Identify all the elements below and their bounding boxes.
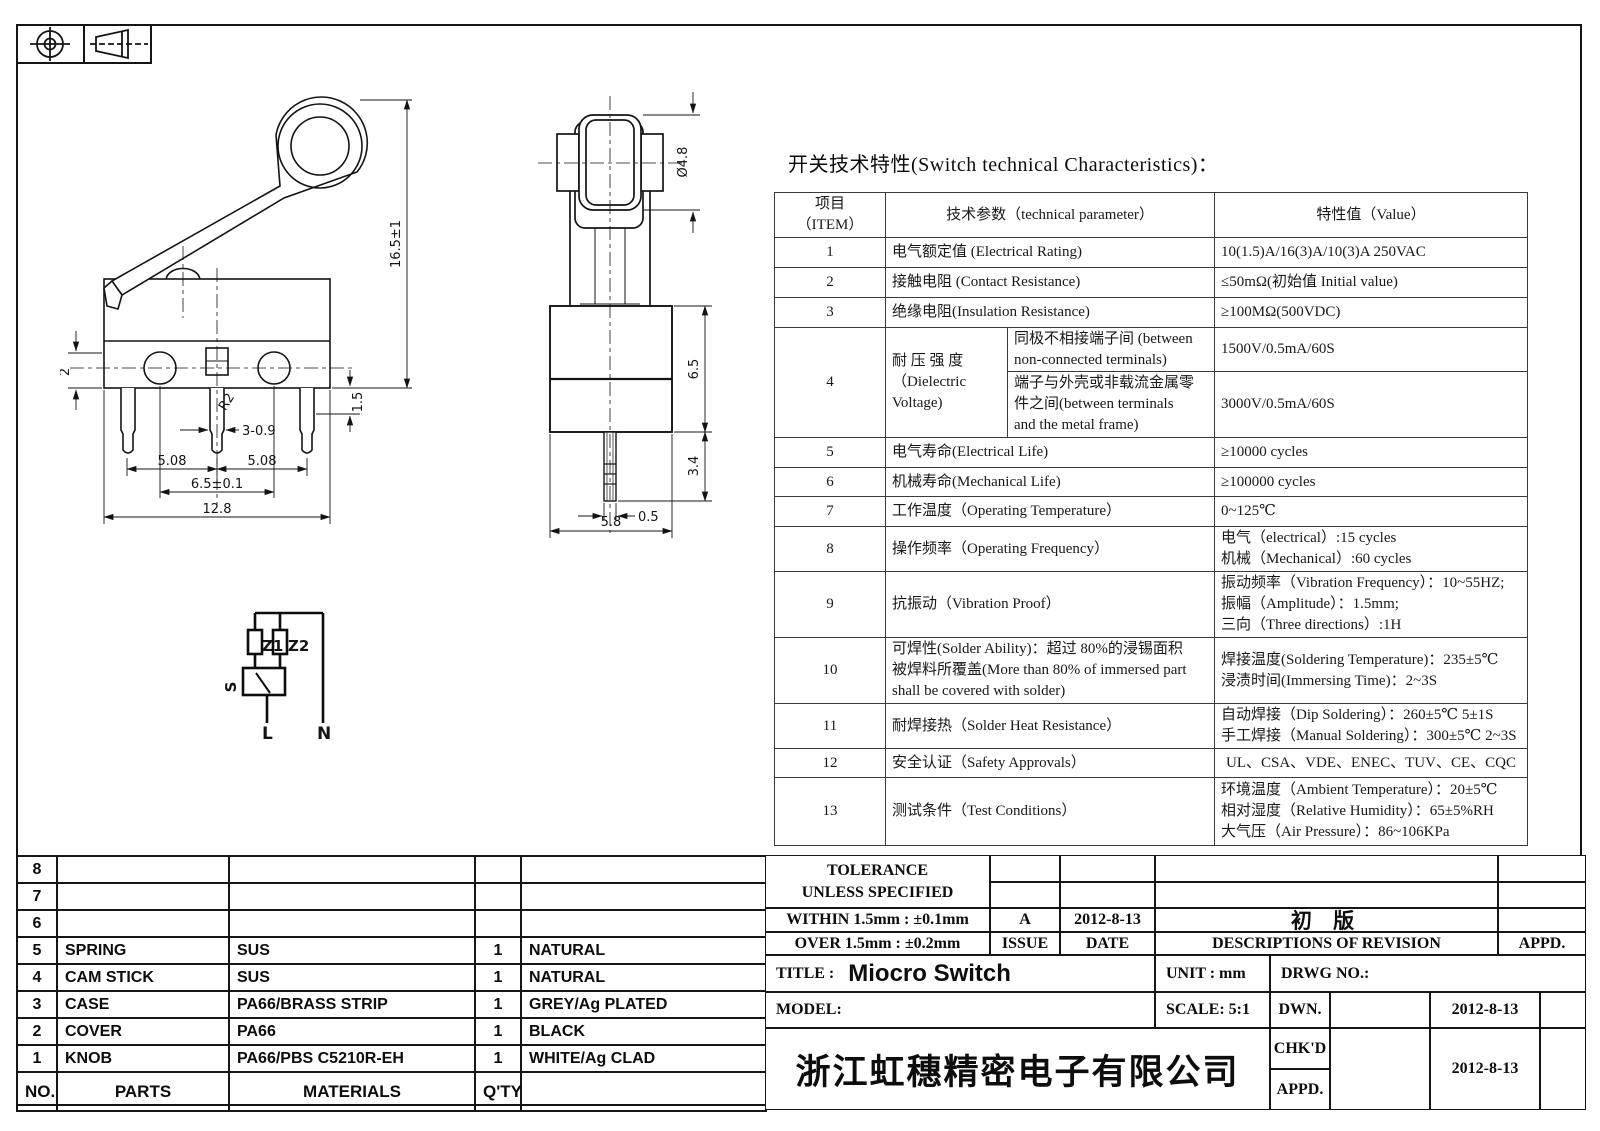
issue-value: A <box>990 908 1060 932</box>
spec-item-no: 9 <box>775 572 886 638</box>
dim-front-right: 1.5 <box>351 392 366 413</box>
spec-param: 可焊性(Solder Ability)：超过 80%的浸锡面积 被焊料所覆盖(M… <box>886 638 1215 704</box>
parts-header-no: NO. <box>17 1072 57 1111</box>
tolerance-over: OVER 1.5mm : ±0.2mm <box>765 932 990 955</box>
table-row: 4 耐 压 强 度 （Dielectric Voltage) 同极不相接端子间 … <box>775 328 1528 372</box>
table-row: 2COVERPA661BLACK <box>17 1018 766 1045</box>
chkd-signature-cell <box>1330 1028 1430 1110</box>
spec-param: 测试条件（Test Conditions） <box>886 778 1215 846</box>
spec-value: ≥100000 cycles <box>1215 468 1528 497</box>
date-label: DATE <box>1060 932 1155 955</box>
part-no: 1 <box>17 1045 57 1072</box>
dim-front-height: 16.5±1 <box>389 220 404 268</box>
part-qty: 1 <box>475 991 521 1018</box>
dim-side-terminal-width: 0.5 <box>638 510 659 525</box>
part-no: 2 <box>17 1018 57 1045</box>
appd-label: APPD. <box>1498 932 1586 955</box>
part-name: COVER <box>57 1018 229 1045</box>
dim-side-diameter: Ø4.8 <box>676 147 691 178</box>
spec-param: 接触电阻 (Contact Resistance) <box>886 268 1215 298</box>
part-color: NATURAL <box>521 964 766 991</box>
revision-empty-cell <box>1498 882 1586 908</box>
part-qty: 1 <box>475 964 521 991</box>
dim-side-body-width: 5.8 <box>601 515 622 530</box>
scale-cell: SCALE: 5:1 <box>1155 992 1270 1028</box>
table-row: 6 <box>17 910 766 937</box>
revision-description-label: DESCRIPTIONS OF REVISION <box>1155 932 1498 955</box>
spec-item-no: 12 <box>775 749 886 778</box>
circuit-z2-label: Z2 <box>288 637 309 655</box>
revision-empty-cell <box>990 855 1060 882</box>
spec-value: 3000V/0.5mA/60S <box>1215 372 1528 438</box>
dwn-date: 2012-8-13 <box>1430 992 1540 1028</box>
part-no: 4 <box>17 964 57 991</box>
company-name: 浙江虹穗精密电子有限公司 <box>765 1028 1270 1110</box>
spec-value: 环境温度（Ambient Temperature）：20±5℃ 相对湿度（Rel… <box>1215 778 1528 846</box>
part-color: WHITE/Ag CLAD <box>521 1045 766 1072</box>
tolerance-within: WITHIN 1.5mm : ±0.1mm <box>765 908 990 932</box>
circuit-z1-label: Z1 <box>262 637 283 655</box>
parts-header-parts: PARTS <box>57 1072 229 1111</box>
drwg-no-cell: DRWG NO.: <box>1270 955 1586 992</box>
spec-item-no: 13 <box>775 778 886 846</box>
table-row: 10 可焊性(Solder Ability)：超过 80%的浸锡面积 被焊料所覆… <box>775 638 1528 704</box>
part-material: PA66/PBS C5210R-EH <box>229 1045 475 1072</box>
table-row: 12 安全认证（Safety Approvals） UL、CSA、VDE、ENE… <box>775 749 1528 778</box>
spec-value: ≤50mΩ(初始值 Initial value) <box>1215 268 1528 298</box>
table-row: 13 测试条件（Test Conditions） 环境温度（Ambient Te… <box>775 778 1528 846</box>
spec-param: 安全认证（Safety Approvals） <box>886 749 1215 778</box>
spec-param: 耐 压 强 度 （Dielectric Voltage) <box>886 328 1008 438</box>
spec-value: ≥10000 cycles <box>1215 438 1528 468</box>
unit-cell: UNIT : mm <box>1155 955 1270 992</box>
part-qty: 1 <box>475 1045 521 1072</box>
dwn-label: DWN. <box>1270 992 1330 1028</box>
spec-item-no: 11 <box>775 704 886 749</box>
spec-param: 抗振动（Vibration Proof） <box>886 572 1215 638</box>
table-row: 11 耐焊接热（Solder Heat Resistance） 自动焊接（Dip… <box>775 704 1528 749</box>
parts-table: 8 7 6 5SPRINGSUS1NATURAL 4CAM STICKSUS1N… <box>16 855 767 1112</box>
part-color: NATURAL <box>521 937 766 964</box>
spec-item-no: 1 <box>775 238 886 268</box>
model-cell: MODEL: <box>765 992 1155 1028</box>
spec-subparam: 端子与外壳或非载流金属零 件之间(between terminals and t… <box>1008 372 1215 438</box>
chkd-label: CHK'D <box>1270 1028 1330 1069</box>
issue-label: ISSUE <box>990 932 1060 955</box>
spec-item-no: 5 <box>775 438 886 468</box>
spec-param: 电气额定值 (Electrical Rating) <box>886 238 1215 268</box>
dwn-extra-cell <box>1540 992 1586 1028</box>
side-view-drawing: Ø4.8 6.5 3.4 0.5 5.8 <box>500 88 760 548</box>
dim-front-pitch2: 5.08 <box>248 454 277 469</box>
table-row: 项目（ITEM） 技术参数（technical parameter） 特性值（V… <box>775 193 1528 238</box>
revision-date-value: 2012-8-13 <box>1060 908 1155 932</box>
spec-item-no: 10 <box>775 638 886 704</box>
table-row: 2 接触电阻 (Contact Resistance) ≤50mΩ(初始值 In… <box>775 268 1528 298</box>
spec-item-no: 7 <box>775 497 886 527</box>
table-row: 7 工作温度（Operating Temperature） 0~125℃ <box>775 497 1528 527</box>
dim-front-left: 2 <box>60 368 73 376</box>
spec-param: 电气寿命(Electrical Life) <box>886 438 1215 468</box>
part-no: 8 <box>17 856 57 883</box>
spec-table-title: 开关技术特性(Switch technical Characteristics)… <box>788 148 1218 177</box>
drawing-sheet: 16.5±1 2 1.5 R2 3-0.9 5.08 5.08 6.5±0.1 … <box>0 0 1600 1131</box>
spec-value: 1500V/0.5mA/60S <box>1215 328 1528 372</box>
table-row: 1 电气额定值 (Electrical Rating) 10(1.5)A/16(… <box>775 238 1528 268</box>
revision-empty-cell <box>1060 882 1155 908</box>
part-no: 6 <box>17 910 57 937</box>
dim-side-terminal-length: 3.4 <box>687 456 702 477</box>
table-row: 5SPRINGSUS1NATURAL <box>17 937 766 964</box>
part-name: CAM STICK <box>57 964 229 991</box>
spec-param: 绝缘电阻(Insulation Resistance) <box>886 298 1215 328</box>
part-no: 7 <box>17 883 57 910</box>
circuit-l-label: L <box>262 724 273 744</box>
appd-row-label: APPD. <box>1270 1069 1330 1110</box>
table-row: 1KNOBPA66/PBS C5210R-EH1WHITE/Ag CLAD <box>17 1045 766 1072</box>
spec-item-no: 3 <box>775 298 886 328</box>
parts-header-color <box>521 1072 766 1111</box>
spec-value: 自动焊接（Dip Soldering）：260±5℃ 5±1S 手工焊接（Man… <box>1215 704 1528 749</box>
table-row: 3 绝缘电阻(Insulation Resistance) ≥100MΩ(500… <box>775 298 1528 328</box>
title-label: TITLE : <box>776 965 834 983</box>
dim-front-width: 12.8 <box>203 502 232 517</box>
spec-value: ≥100MΩ(500VDC) <box>1215 298 1528 328</box>
part-name: SPRING <box>57 937 229 964</box>
part-color: BLACK <box>521 1018 766 1045</box>
front-view-drawing: 16.5±1 2 1.5 R2 3-0.9 5.08 5.08 6.5±0.1 … <box>60 78 460 530</box>
appd-empty-cell <box>1498 908 1586 932</box>
dim-front-pitch1: 5.08 <box>158 454 187 469</box>
table-row: 7 <box>17 883 766 910</box>
spec-item-no: 6 <box>775 468 886 497</box>
part-no: 5 <box>17 937 57 964</box>
circuit-diagram: Z1 Z2 S L N <box>200 570 400 750</box>
spec-value: 10(1.5)A/16(3)A/10(3)A 250VAC <box>1215 238 1528 268</box>
table-row: 6 机械寿命(Mechanical Life) ≥100000 cycles <box>775 468 1528 497</box>
part-no: 3 <box>17 991 57 1018</box>
tolerance-cell: TOLERANCE UNLESS SPECIFIED <box>765 855 990 908</box>
table-row: 8 <box>17 856 766 883</box>
dwn-signature-cell <box>1330 992 1430 1028</box>
dim-front-pin: 3-0.9 <box>242 424 276 439</box>
spec-param: 机械寿命(Mechanical Life) <box>886 468 1215 497</box>
table-row: 4CAM STICKSUS1NATURAL <box>17 964 766 991</box>
spec-header-param: 技术参数（technical parameter） <box>886 193 1215 238</box>
part-name: CASE <box>57 991 229 1018</box>
table-row: 5 电气寿命(Electrical Life) ≥10000 cycles <box>775 438 1528 468</box>
spec-subparam: 同极不相接端子间 (between non-connected terminal… <box>1008 328 1215 372</box>
spec-param: 耐焊接热（Solder Heat Resistance） <box>886 704 1215 749</box>
spec-value: 焊接温度(Soldering Temperature)：235±5℃ 浸渍时间(… <box>1215 638 1528 704</box>
part-color: GREY/Ag PLATED <box>521 991 766 1018</box>
part-material: SUS <box>229 937 475 964</box>
part-name: KNOB <box>57 1045 229 1072</box>
parts-header-qty: Q'TY <box>475 1072 521 1111</box>
dim-side-body-height: 6.5 <box>687 359 702 380</box>
chkd-date: 2012-8-13 <box>1430 1028 1540 1110</box>
part-qty: 1 <box>475 1018 521 1045</box>
title-cell: TITLE : Miocro Switch <box>765 955 1155 992</box>
revision-empty-cell <box>1155 855 1498 882</box>
part-qty: 1 <box>475 937 521 964</box>
table-row: NO. PARTS MATERIALS Q'TY <box>17 1072 766 1111</box>
circuit-n-label: N <box>317 724 331 744</box>
spec-value: 电气（electrical）:15 cycles 机械（Mechanical）:… <box>1215 527 1528 572</box>
table-row: 8 操作频率（Operating Frequency） 电气（electrica… <box>775 527 1528 572</box>
spec-value: 0~125℃ <box>1215 497 1528 527</box>
parts-header-materials: MATERIALS <box>229 1072 475 1111</box>
part-material: PA66 <box>229 1018 475 1045</box>
projection-symbol-box <box>16 24 152 64</box>
spec-item-no: 4 <box>775 328 886 438</box>
circuit-s-label: S <box>222 682 240 693</box>
title-value: Miocro Switch <box>848 960 1011 988</box>
spec-param: 操作频率（Operating Frequency） <box>886 527 1215 572</box>
spec-table: 项目（ITEM） 技术参数（technical parameter） 特性值（V… <box>774 192 1528 846</box>
part-material: PA66/BRASS STRIP <box>229 991 475 1018</box>
dim-front-span: 6.5±0.1 <box>191 477 243 492</box>
spec-item-no: 2 <box>775 268 886 298</box>
table-row: 9 抗振动（Vibration Proof） 振动频率（Vibration Fr… <box>775 572 1528 638</box>
revision-empty-cell <box>1060 855 1155 882</box>
spec-value: 振动频率（Vibration Frequency）：10~55HZ; 振幅（Am… <box>1215 572 1528 638</box>
revision-description-value: 初 版 <box>1155 908 1498 932</box>
spec-header-value: 特性值（Value） <box>1215 193 1528 238</box>
revision-empty-cell <box>990 882 1060 908</box>
spec-value: UL、CSA、VDE、ENEC、TUV、CE、CQC <box>1215 749 1528 778</box>
table-row: 3CASEPA66/BRASS STRIP1GREY/Ag PLATED <box>17 991 766 1018</box>
spec-param: 工作温度（Operating Temperature） <box>886 497 1215 527</box>
chkd-extra-cell <box>1540 1028 1586 1110</box>
part-material: SUS <box>229 964 475 991</box>
spec-item-no: 8 <box>775 527 886 572</box>
spec-header-item: 项目 <box>775 194 885 215</box>
revision-empty-cell <box>1498 855 1586 882</box>
